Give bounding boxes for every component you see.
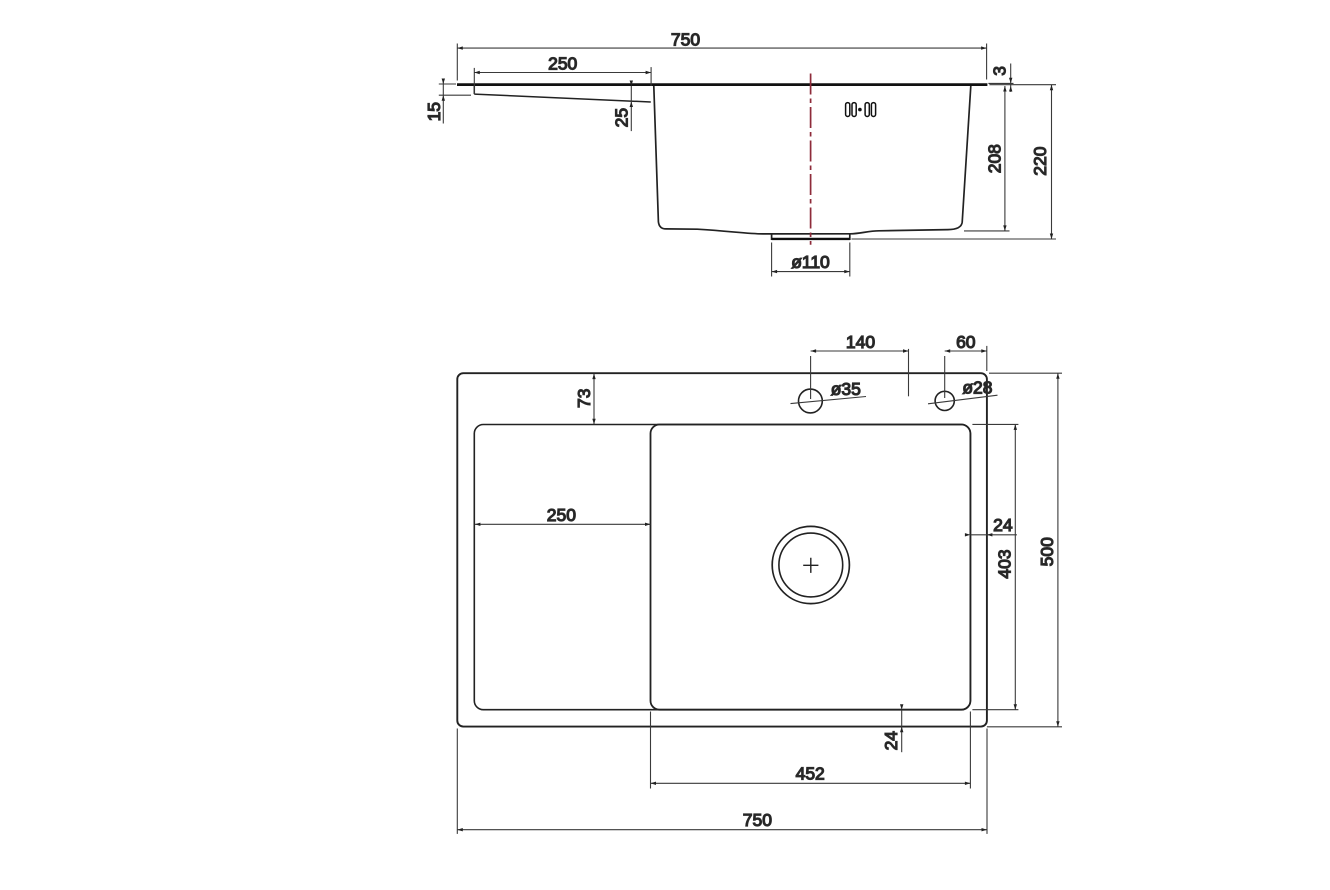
- svg-text:750: 750: [743, 810, 772, 830]
- svg-text:750: 750: [671, 29, 700, 49]
- svg-text:208: 208: [984, 144, 1004, 173]
- svg-text:ø110: ø110: [791, 252, 830, 272]
- svg-text:403: 403: [994, 549, 1014, 578]
- svg-text:500: 500: [1037, 537, 1057, 566]
- svg-text:24: 24: [993, 515, 1013, 535]
- svg-text:452: 452: [796, 764, 825, 784]
- svg-text:25: 25: [611, 108, 631, 127]
- svg-text:15: 15: [424, 102, 444, 121]
- svg-text:73: 73: [574, 389, 594, 408]
- svg-text:250: 250: [548, 53, 577, 73]
- svg-text:220: 220: [1030, 146, 1050, 175]
- svg-text:60: 60: [956, 332, 976, 352]
- svg-text:250: 250: [547, 505, 576, 525]
- svg-text:24: 24: [881, 731, 901, 751]
- svg-text:ø28: ø28: [962, 378, 992, 398]
- svg-text:3: 3: [989, 66, 1009, 76]
- svg-text:140: 140: [846, 332, 875, 352]
- svg-text:ø35: ø35: [831, 379, 861, 399]
